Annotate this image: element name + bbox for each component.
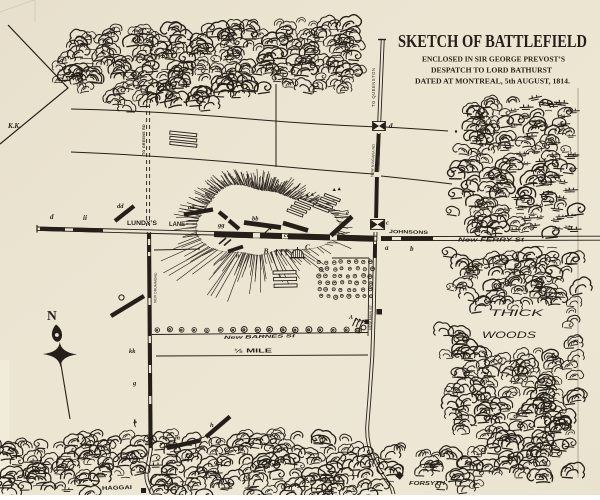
svg-text:gg: gg	[217, 222, 225, 229]
svg-text:n: n	[236, 253, 240, 260]
svg-text:DESPATCH TO LORD BATHURST: DESPATCH TO LORD BATHURST	[431, 66, 553, 75]
svg-text:e: e	[346, 209, 349, 217]
svg-text:cc: cc	[284, 232, 290, 239]
svg-text:WOODS: WOODS	[482, 330, 537, 341]
svg-text:t: t	[134, 419, 136, 426]
svg-text:h: h	[210, 422, 214, 429]
svg-text:TO GREENS RD: TO GREENS RD	[142, 124, 146, 155]
svg-text:c: c	[386, 220, 389, 227]
svg-text:SKETCH OF BATTLEFIELD: SKETCH OF BATTLEFIELD	[398, 31, 587, 51]
svg-text:b: b	[410, 245, 414, 253]
svg-text:B: B	[263, 247, 269, 256]
svg-text:JOHNSONS: JOHNSONS	[389, 229, 429, 236]
svg-text:d: d	[50, 213, 54, 221]
svg-text:½ MILE: ½ MILE	[234, 348, 272, 355]
svg-text:A: A	[348, 315, 353, 321]
svg-text:K.K.: K.K.	[7, 122, 21, 130]
svg-text:aa: aa	[188, 204, 195, 211]
svg-text:d: d	[389, 122, 393, 130]
svg-text:ii: ii	[83, 214, 87, 222]
svg-text:bb: bb	[252, 216, 259, 223]
svg-text:R.P.: R.P.	[542, 473, 549, 478]
svg-text:ENCLOSED IN SIR GEORGE PREVOST: ENCLOSED IN SIR GEORGE PREVOST’S	[422, 55, 565, 64]
svg-text:HAGGAI: HAGGAI	[102, 485, 133, 492]
svg-text:LUNDY’S: LUNDY’S	[127, 220, 157, 227]
svg-text:TO QUEENSTON: TO QUEENSTON	[371, 68, 376, 107]
svg-text:FORSYTH: FORSYTH	[409, 481, 446, 487]
svg-text:dd: dd	[117, 203, 124, 210]
svg-text:THICK: THICK	[490, 308, 544, 319]
svg-text:DATED AT MONTREAL, 5th AUGUST,: DATED AT MONTREAL, 5th AUGUST, 1814.	[415, 77, 570, 86]
svg-text:a: a	[385, 244, 389, 252]
svg-text:kk: kk	[129, 348, 136, 355]
svg-text:NEW DRUMMOND: NEW DRUMMOND	[153, 272, 158, 303]
svg-text:N: N	[47, 308, 57, 323]
svg-text:New FERRY St: New FERRY St	[458, 238, 525, 244]
svg-text:m: m	[175, 435, 180, 442]
svg-text:LANE: LANE	[169, 221, 185, 228]
